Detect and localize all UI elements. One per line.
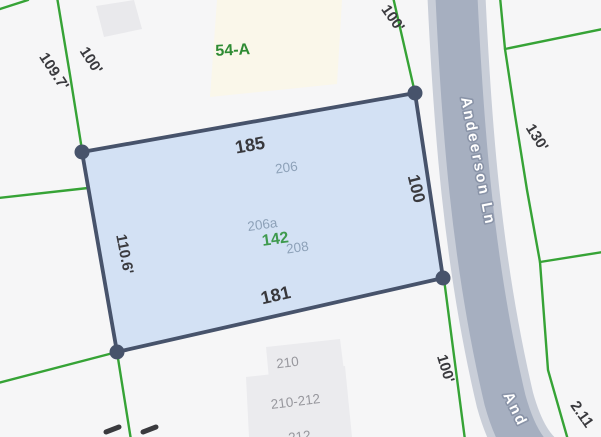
parcel-vertex-bottomleft[interactable] [110, 345, 125, 360]
lot-label-210: 210 [275, 354, 299, 372]
parcel-map-canvas: Andeerson Ln And 185 181 100 110.6' 109.… [0, 0, 601, 437]
lot-label-208: 208 [285, 239, 309, 257]
lot-label-212-clipped: 212 [287, 428, 311, 437]
lot-label-206: 206 [274, 159, 298, 177]
parcel-vertex-topright[interactable] [408, 86, 423, 101]
parcel-map-viewport[interactable]: Andeerson Ln And 185 181 100 110.6' 109.… [0, 0, 601, 437]
parcel-vertex-topleft[interactable] [75, 145, 90, 160]
parcel-label-54a: 54-A [215, 41, 251, 60]
parcel-vertex-bottomright[interactable] [436, 271, 451, 286]
